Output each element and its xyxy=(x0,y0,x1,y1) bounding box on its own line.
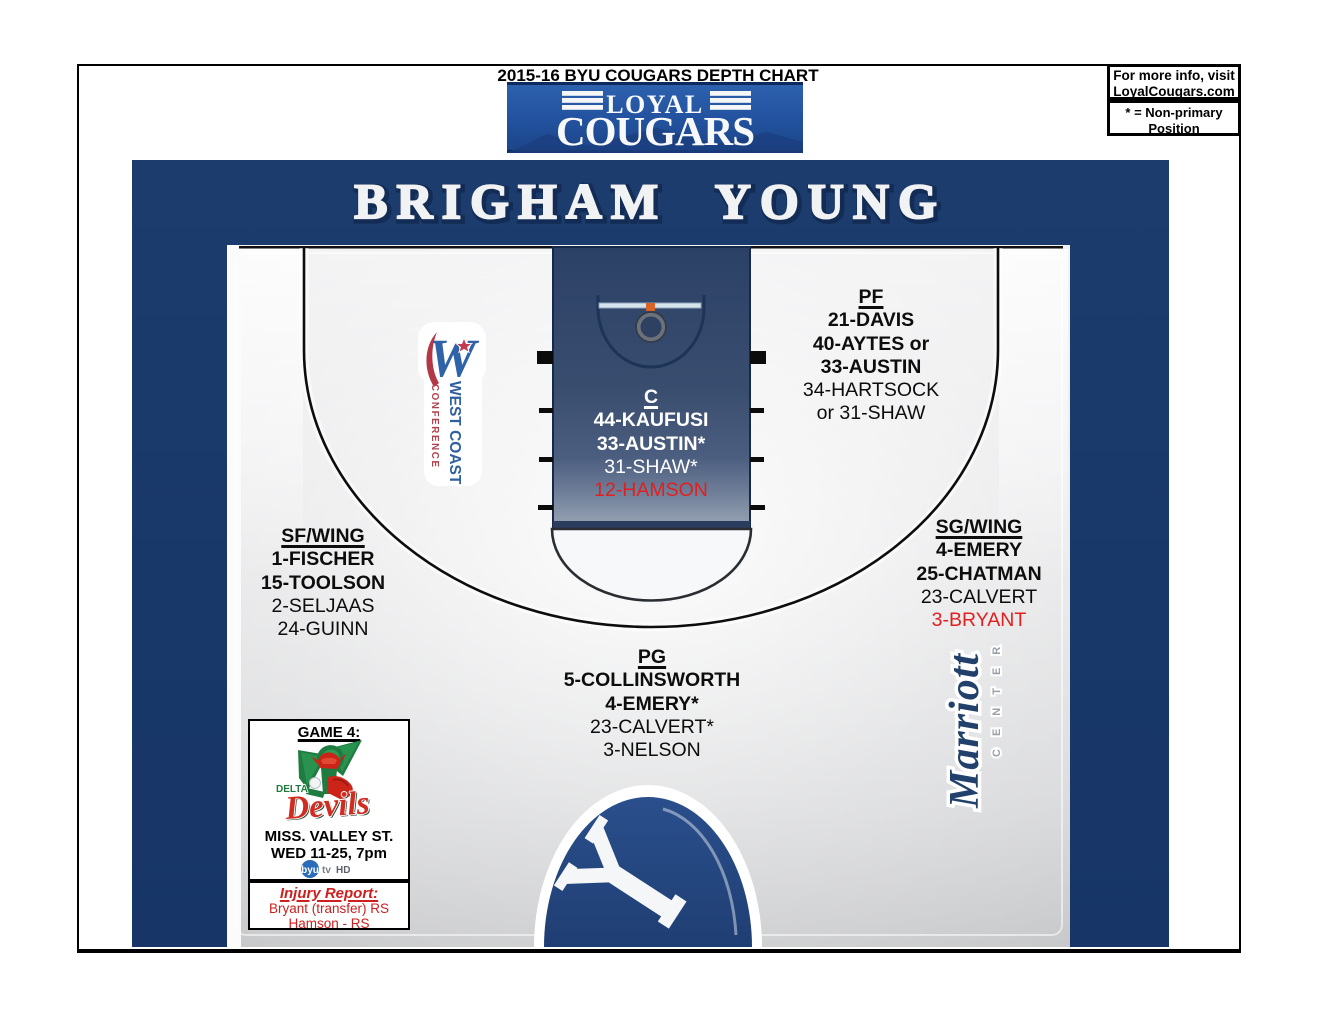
svg-text:byu: byu xyxy=(301,865,319,876)
svg-text:Devils: Devils xyxy=(283,785,371,824)
svg-text:WEST COAST: WEST COAST xyxy=(446,381,463,485)
svg-text:CENTER: CENTER xyxy=(991,634,1003,757)
svg-text:HD: HD xyxy=(336,865,350,876)
svg-text:tv: tv xyxy=(322,865,331,876)
svg-text:CONFERENCE: CONFERENCE xyxy=(429,384,440,469)
svg-text:Marriott: Marriott xyxy=(942,653,988,809)
svg-text:BRIGHAM YOUNG: BRIGHAM YOUNG xyxy=(354,173,946,229)
svg-text:COUGARS: COUGARS xyxy=(556,108,754,153)
